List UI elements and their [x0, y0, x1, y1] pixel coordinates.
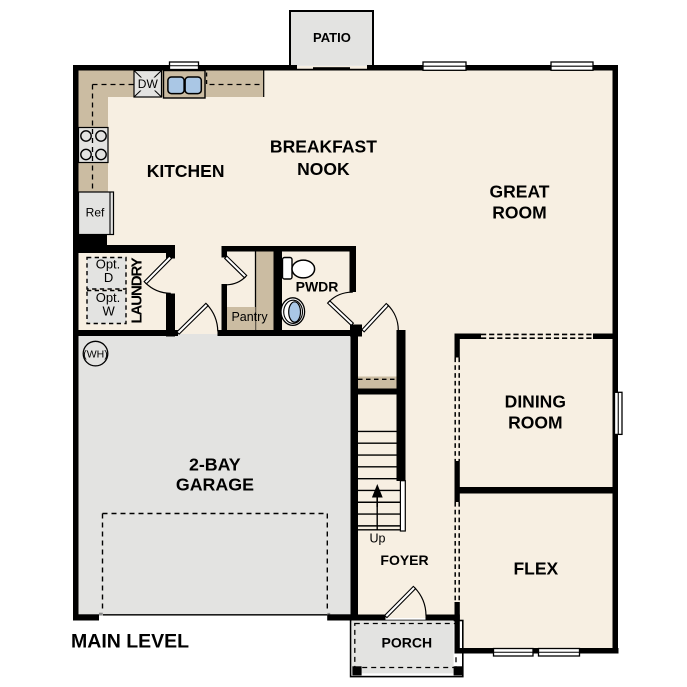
svg-text:D: D	[104, 270, 113, 285]
svg-text:BREAKFAST: BREAKFAST	[270, 136, 377, 156]
svg-text:GARAGE: GARAGE	[176, 475, 254, 495]
svg-text:FLEX: FLEX	[513, 559, 558, 579]
svg-text:PWDR: PWDR	[296, 278, 339, 294]
svg-text:2-BAY: 2-BAY	[189, 454, 241, 474]
svg-text:ROOM: ROOM	[508, 412, 562, 432]
svg-text:KITCHEN: KITCHEN	[147, 161, 225, 181]
svg-text:PATIO: PATIO	[313, 30, 351, 45]
svg-text:ROOM: ROOM	[492, 203, 546, 223]
svg-text:DW: DW	[138, 77, 159, 91]
svg-text:FOYER: FOYER	[380, 552, 428, 568]
svg-text:Pantry: Pantry	[231, 310, 268, 324]
svg-text:(WH): (WH)	[83, 348, 108, 360]
svg-text:Ref: Ref	[86, 206, 105, 220]
svg-text:W: W	[102, 304, 115, 319]
svg-text:Up: Up	[370, 532, 386, 546]
svg-text:MAIN LEVEL: MAIN LEVEL	[71, 630, 189, 652]
svg-text:LAUNDRY: LAUNDRY	[128, 257, 145, 323]
svg-text:Opt.: Opt.	[96, 290, 121, 305]
svg-text:GREAT: GREAT	[490, 182, 550, 202]
svg-text:DINING: DINING	[505, 392, 566, 412]
svg-text:NOOK: NOOK	[297, 159, 350, 179]
svg-text:PORCH: PORCH	[382, 634, 433, 650]
